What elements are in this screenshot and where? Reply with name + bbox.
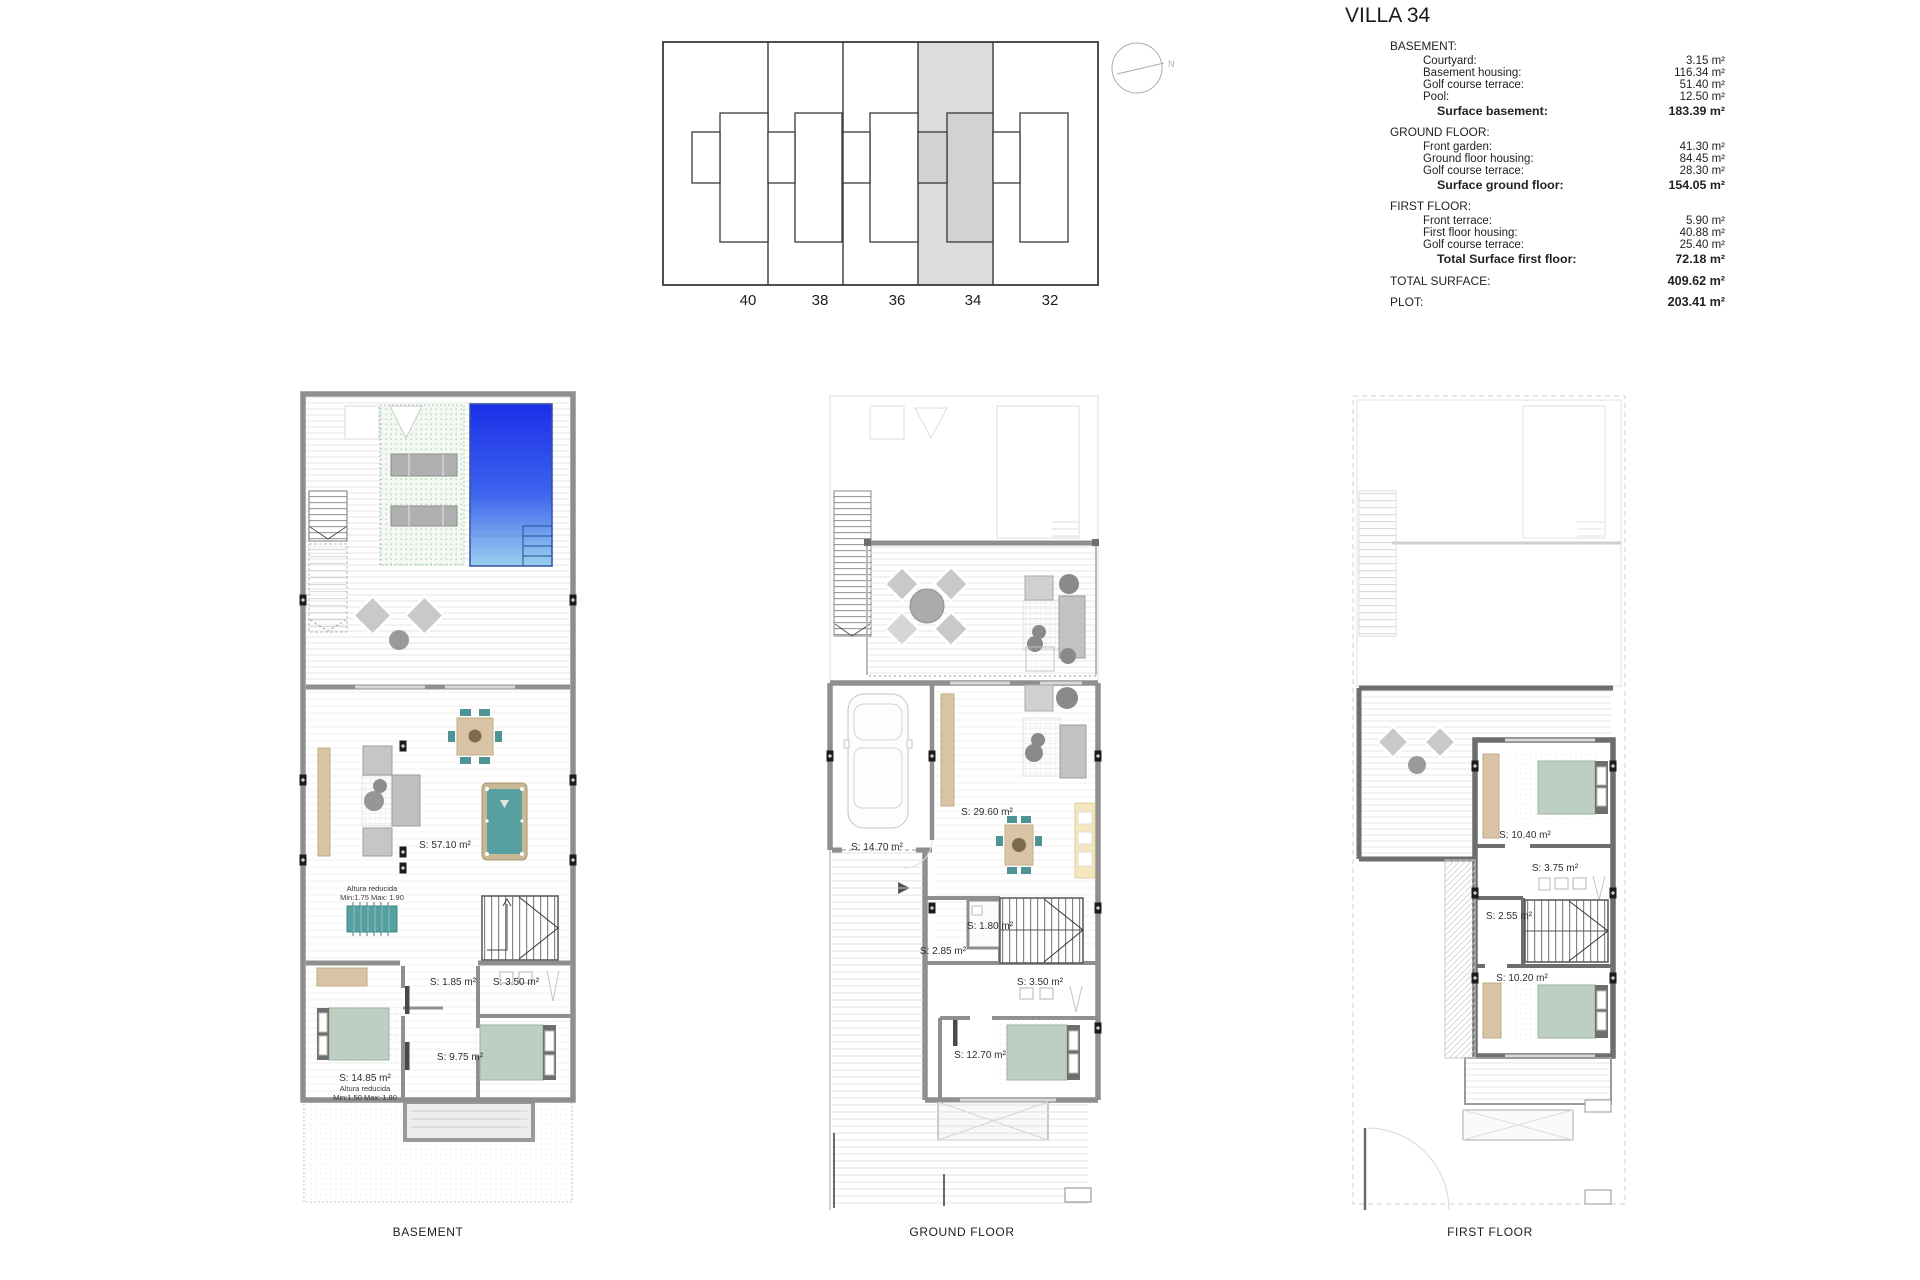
- surface-total-row: Total Surface first floor:72.18 m²: [1345, 253, 1725, 267]
- lawn-area: [380, 405, 464, 565]
- row-value: 51.40 m²: [1680, 80, 1725, 92]
- sideboard: [318, 748, 330, 856]
- surface-row: Golf course terrace:25.40 m²: [1345, 240, 1725, 252]
- basement-floor-plan: S: 57.10 m² Altura reducida Min:1.75 Max…: [295, 388, 585, 1248]
- area-label-bathroom: S: 3.75 m²: [1532, 863, 1579, 874]
- first-floor-plan: S: 10.40 m² S: 3.75 m² S: 2.55 m² S: 10.…: [1345, 388, 1635, 1248]
- section-header: BASEMENT:: [1390, 39, 1725, 53]
- floor-plan-title: BASEMENT: [393, 1225, 464, 1239]
- plan-sheet: 40 38 36 34 32 N VILLA 34 BASEMENT: Cour…: [0, 0, 1920, 1280]
- area-label-bedroom: S: 12.70 m²: [954, 1050, 1006, 1061]
- surface-row: Courtyard:3.15 m²: [1345, 56, 1725, 68]
- site-plan: 40 38 36 34 32 N: [655, 32, 1185, 317]
- kitchen-counter: [1075, 803, 1095, 878]
- row-label: TOTAL SURFACE:: [1390, 275, 1490, 288]
- foosball-table: [347, 902, 397, 936]
- area-label-bathroom: S: 3.50 m²: [493, 977, 540, 988]
- area-label-bathroom: S: 3.50 m²: [1017, 977, 1064, 988]
- entry-step: [1065, 1188, 1091, 1202]
- terrace-staircase: [309, 491, 347, 632]
- area-label-hall: S: 2.55 m²: [1486, 911, 1533, 922]
- row-label: Golf course terrace:: [1423, 240, 1524, 252]
- basement-staircase: [482, 896, 558, 960]
- height-note: Altura reducida: [340, 1084, 391, 1093]
- row-value: 72.18 m²: [1675, 253, 1725, 267]
- staircase: [1525, 900, 1608, 962]
- plot-number: 34: [965, 292, 982, 309]
- bed: [1511, 980, 1608, 1042]
- wardrobe: [317, 968, 367, 986]
- surface-row: Front garden:41.30 m²: [1345, 142, 1725, 154]
- sideboard: [941, 694, 954, 806]
- underlay-outline: [1357, 400, 1621, 686]
- outdoor-shower: [345, 406, 379, 439]
- surface-section-ground: GROUND FLOOR: Front garden:41.30 m² Grou…: [1345, 125, 1725, 192]
- ground-floor-plan: S: 14.70 m² S: 29.60 m² S: 1.80 m² S: 2.…: [820, 388, 1110, 1248]
- area-label-garage: S: 14.70 m²: [851, 842, 903, 853]
- compass-north-label: N: [1168, 59, 1175, 69]
- area-label-bedroom: S: 14.85 m²: [339, 1073, 391, 1084]
- villa-title: VILLA 34: [1345, 4, 1725, 28]
- door-leaf: [405, 1042, 410, 1070]
- area-label-hall: S: 2.85 m²: [920, 946, 967, 957]
- row-value: 203.41 m²: [1668, 296, 1725, 309]
- door-leaf: [405, 986, 410, 1014]
- surface-total-row: Surface basement:183.39 m²: [1345, 105, 1725, 119]
- plot-number: 40: [740, 292, 757, 309]
- surface-row: Ground floor housing:84.45 m²: [1345, 154, 1725, 166]
- door-leaf: [953, 1020, 958, 1046]
- front-garden: [832, 1102, 1088, 1208]
- area-label-bedroom1: S: 10.40 m²: [1499, 830, 1551, 841]
- surface-summary-panel: VILLA 34 BASEMENT: Courtyard:3.15 m² Bas…: [1345, 4, 1725, 309]
- stair-void: [1445, 860, 1475, 1058]
- row-label: Pool:: [1423, 92, 1449, 104]
- row-label: Surface ground floor:: [1437, 179, 1564, 193]
- swimming-pool: [470, 404, 552, 566]
- car: [844, 694, 912, 828]
- terrace-table: [910, 589, 944, 623]
- section-header: GROUND FLOOR:: [1390, 125, 1725, 139]
- wardrobe: [1483, 983, 1501, 1038]
- row-value: 409.62 m²: [1668, 275, 1725, 288]
- plot-row: PLOT:203.41 m²: [1345, 296, 1725, 309]
- floor-plan-title: FIRST FLOOR: [1447, 1225, 1533, 1239]
- basement-courtyard: [304, 1102, 572, 1202]
- surface-row: Front terrace:5.90 m²: [1345, 216, 1725, 228]
- exterior-staircase: [834, 491, 871, 636]
- driveway: [832, 852, 923, 1100]
- row-label: Golf course terrace:: [1423, 166, 1524, 178]
- section-header: FIRST FLOOR:: [1390, 199, 1725, 213]
- area-label-corridor: S: 9.75 m²: [437, 1052, 484, 1063]
- area-label-living: S: 57.10 m²: [419, 840, 471, 851]
- site-plan-numbers: 40 38 36 34 32: [740, 292, 1059, 309]
- surface-row: Pool:12.50 m²: [1345, 92, 1725, 104]
- row-label: Total Surface first floor:: [1437, 253, 1577, 267]
- wardrobe: [1483, 754, 1499, 838]
- compass-icon: N: [1112, 43, 1175, 93]
- row-value: 154.05 m²: [1669, 179, 1725, 193]
- bed: [313, 996, 405, 1064]
- row-label: Surface basement:: [1437, 105, 1548, 119]
- row-label: Golf course terrace:: [1423, 80, 1524, 92]
- underlay-staircase: [1359, 491, 1396, 636]
- row-value: 25.40 m²: [1680, 240, 1725, 252]
- row-value: 183.39 m²: [1669, 105, 1725, 119]
- entry-step: [1585, 1190, 1611, 1204]
- total-surface-row: TOTAL SURFACE:409.62 m²: [1345, 275, 1725, 288]
- gate-arc: [1367, 1128, 1449, 1210]
- area-label-living: S: 29.60 m²: [961, 807, 1013, 818]
- height-note: Altura reducida: [347, 884, 398, 893]
- height-note: Min:1.50 Max: 1.80: [333, 1093, 397, 1102]
- height-note: Min:1.75 Max: 1.90: [340, 893, 404, 902]
- bed: [1511, 754, 1608, 820]
- area-label-wc: S: 1.80 m²: [967, 921, 1014, 932]
- surface-section-basement: BASEMENT: Courtyard:3.15 m² Basement hou…: [1345, 39, 1725, 118]
- site-plan-plots: [663, 42, 1098, 285]
- billiard-table: [482, 783, 527, 860]
- plot-number: 36: [889, 292, 906, 309]
- surface-row: Golf course terrace:28.30 m²: [1345, 166, 1725, 178]
- surface-row: First floor housing:40.88 m²: [1345, 228, 1725, 240]
- bed: [996, 1018, 1080, 1084]
- entrance-porch: [1463, 1110, 1573, 1140]
- row-value: 28.30 m²: [1680, 166, 1725, 178]
- area-label-bedroom2: S: 10.20 m²: [1496, 973, 1548, 984]
- plot-number: 38: [812, 292, 829, 309]
- surface-row: Basement housing:116.34 m²: [1345, 68, 1725, 80]
- surface-row: Golf course terrace:51.40 m²: [1345, 80, 1725, 92]
- surface-total-row: Surface ground floor:154.05 m²: [1345, 179, 1725, 193]
- front-terrace: [1465, 1058, 1611, 1112]
- row-label: PLOT:: [1390, 296, 1423, 309]
- floor-plan-title: GROUND FLOOR: [909, 1225, 1014, 1239]
- row-value: 12.50 m²: [1680, 92, 1725, 104]
- golf-course-terrace: [864, 539, 1099, 676]
- area-label-storage: S: 1.85 m²: [430, 977, 477, 988]
- bed: [475, 1020, 556, 1082]
- surface-section-first: FIRST FLOOR: Front terrace:5.90 m² First…: [1345, 199, 1725, 266]
- plot-number: 32: [1042, 292, 1059, 309]
